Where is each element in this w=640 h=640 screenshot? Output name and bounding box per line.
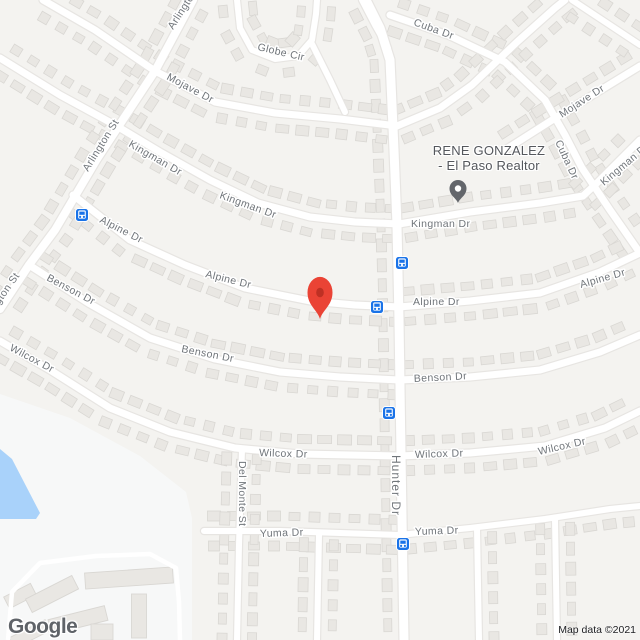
bus-stop-icon[interactable] <box>397 538 410 551</box>
road-south-st-3 <box>555 519 557 640</box>
street-label: Wilcox Dr <box>415 447 464 461</box>
bus-stop-icon[interactable] <box>76 209 89 222</box>
map-canvas[interactable]: Arlington StArlington StArlington StMoja… <box>0 0 640 640</box>
map-tiles: Arlington StArlington StArlington StMoja… <box>0 0 640 640</box>
street-label: Kingman Dr <box>411 218 471 230</box>
bus-stop-icon[interactable] <box>371 301 384 314</box>
poi-label[interactable]: RENE GONZALEZ - El Paso Realtor <box>433 144 545 173</box>
street-label: Yuma Dr <box>415 524 459 538</box>
poi-label-line1: RENE GONZALEZ <box>433 144 545 159</box>
street-label: Hunter Dr <box>389 455 403 516</box>
poi-label-line2: - El Paso Realtor <box>433 159 545 174</box>
road-south-st-1 <box>317 535 319 640</box>
street-label: Yuma Dr <box>260 526 304 540</box>
bus-stop-icon[interactable] <box>396 257 409 270</box>
street-label: Del Monte St <box>236 461 248 527</box>
bus-stop-icon[interactable] <box>383 407 396 420</box>
road-south-st-2 <box>477 528 479 640</box>
street-label: Wilcox Dr <box>259 447 308 461</box>
google-logo[interactable]: Google <box>8 615 77 639</box>
street-label: Alpine Dr <box>413 296 460 308</box>
